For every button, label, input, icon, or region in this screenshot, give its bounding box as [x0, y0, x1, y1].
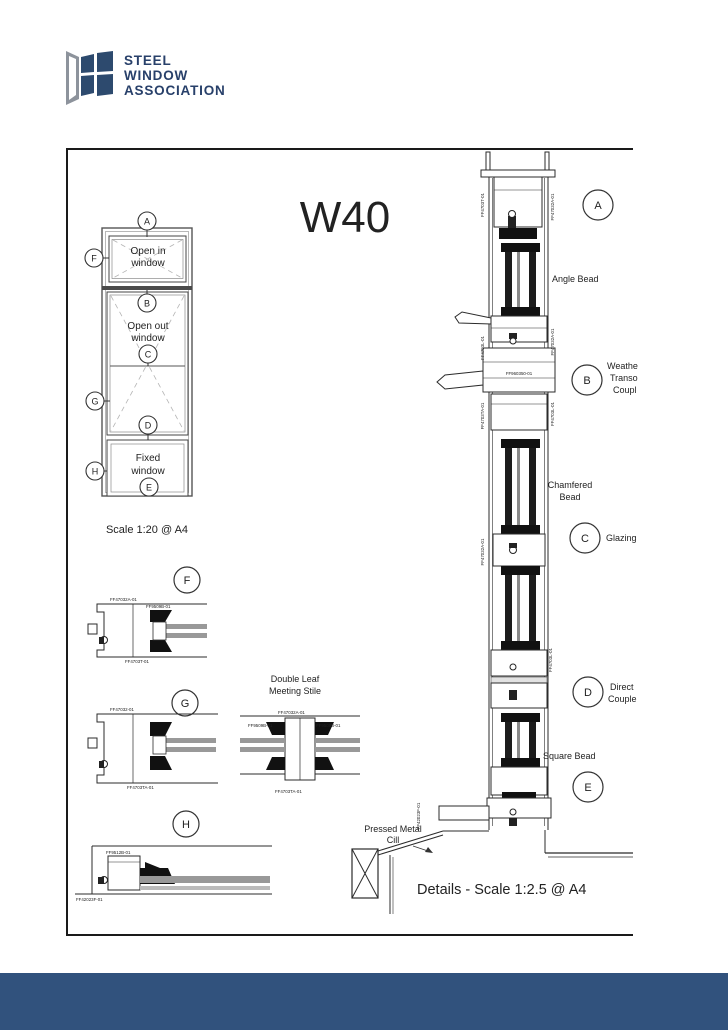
direct-couple-label-2: Couple [608, 694, 637, 704]
double-leaf-label-1: Double Leaf [271, 674, 320, 684]
part-label: FF47032A-01 [110, 597, 137, 602]
part-label: FF4703T-01 [480, 192, 485, 216]
elevation-diagram: Open in window Open out window Fixed win… [85, 212, 192, 536]
open-out-label-1: Open out [127, 321, 168, 332]
detail-marker-h: H [182, 819, 190, 831]
angle-bead-label: Angle Bead [552, 274, 599, 284]
part-label: FF47032-01 [110, 707, 134, 712]
detail-h: H FF9512B-01 FF42023F-01 [75, 811, 272, 902]
footer-bar [0, 973, 728, 1030]
part-label: FF4703L-01 [548, 647, 553, 671]
section-transom-b: FF960350-01 [437, 312, 555, 430]
detail-marker-c: C [581, 533, 589, 545]
part-label: FF4703T-01 [125, 659, 149, 664]
detail-marker-e: E [584, 782, 591, 794]
detail-g: G FF47032-01 FF4703TA-01 [88, 690, 218, 790]
weathered-transom-label-3: Coupl [613, 385, 637, 395]
sheet-title: W40 [300, 193, 390, 242]
marker-h: H [92, 467, 99, 477]
part-label: FF47032A-01 [550, 193, 555, 220]
direct-couple-label-1: Direct [610, 682, 634, 692]
part-label: FF4703L-01 [550, 401, 555, 425]
part-label: FF47032A-01 [278, 710, 305, 715]
part-label: FF4703TA-01 [275, 789, 302, 794]
section-cill-e [439, 767, 551, 826]
marker-b: B [144, 299, 150, 309]
part-label: FF9509B-01 [248, 723, 273, 728]
meeting-stile-detail: Double Leaf Meeting Stile FF47032A-01 FF… [240, 674, 360, 794]
page: STEEL WINDOW ASSOCIATION W40 Open in win… [0, 0, 728, 1030]
detail-f: F FF47032A-01 FF9509B-01 FF4703T-01 [88, 567, 207, 664]
technical-drawing: W40 Open in window Open out window [0, 0, 728, 1030]
part-label: FF4703TA-01 [127, 785, 154, 790]
section-head [481, 152, 555, 239]
marker-a: A [144, 217, 150, 227]
chamfered-bead-label-1: Chamfered [548, 480, 593, 490]
chamfered-bead-label-2: Bead [559, 492, 580, 502]
weathered-transom-label-2: Transo [610, 373, 638, 383]
part-label: FF4703L-01 [480, 335, 485, 359]
part-label: FF9509B-01 [146, 604, 171, 609]
section-direct-couple-d [491, 650, 547, 708]
glass-segment [501, 566, 540, 650]
double-leaf-label-2: Meeting Stile [269, 686, 321, 696]
fixed-label-2: window [130, 466, 165, 477]
marker-c: C [145, 350, 152, 360]
glass-segment [501, 243, 540, 316]
detail-marker-f: F [184, 575, 191, 587]
open-out-label-2: window [130, 333, 165, 344]
section-glazing-bar-c [493, 534, 545, 566]
part-label: FF42023F-01 [76, 897, 103, 902]
detail-marker-d: D [584, 687, 592, 699]
part-label: FF4703TA-01 [480, 402, 485, 429]
pressed-cill-label-2: Cill [387, 835, 400, 845]
detail-marker-a: A [594, 200, 602, 212]
marker-f: F [91, 254, 97, 264]
detail-marker-g: G [181, 698, 190, 710]
marker-e: E [146, 483, 152, 493]
part-label: FF47032A-01 [480, 538, 485, 565]
glazing-label: Glazing [606, 533, 637, 543]
details-scale-note: Details - Scale 1:2.5 @ A4 [417, 882, 586, 898]
marker-g: G [91, 397, 98, 407]
open-in-label-1: Open in [130, 246, 165, 257]
elevation-scale-note: Scale 1:20 @ A4 [106, 524, 188, 536]
fixed-label-1: Fixed [136, 453, 160, 464]
square-bead-label: Square Bead [543, 751, 596, 761]
pressed-cill-label-1: Pressed Metal [364, 824, 422, 834]
weathered-transom-label-1: Weathe [607, 361, 638, 371]
detail-marker-b: B [583, 375, 590, 387]
glass-segment [501, 439, 540, 534]
open-in-label-2: window [130, 258, 165, 269]
marker-d: D [145, 421, 152, 431]
glass-segment [501, 713, 540, 767]
part-label: FF47032A-01 [550, 328, 555, 355]
part-label: FF9512B-01 [106, 850, 131, 855]
part-label: FF960350-01 [506, 371, 533, 376]
part-label: FF9509B-01 [316, 723, 341, 728]
